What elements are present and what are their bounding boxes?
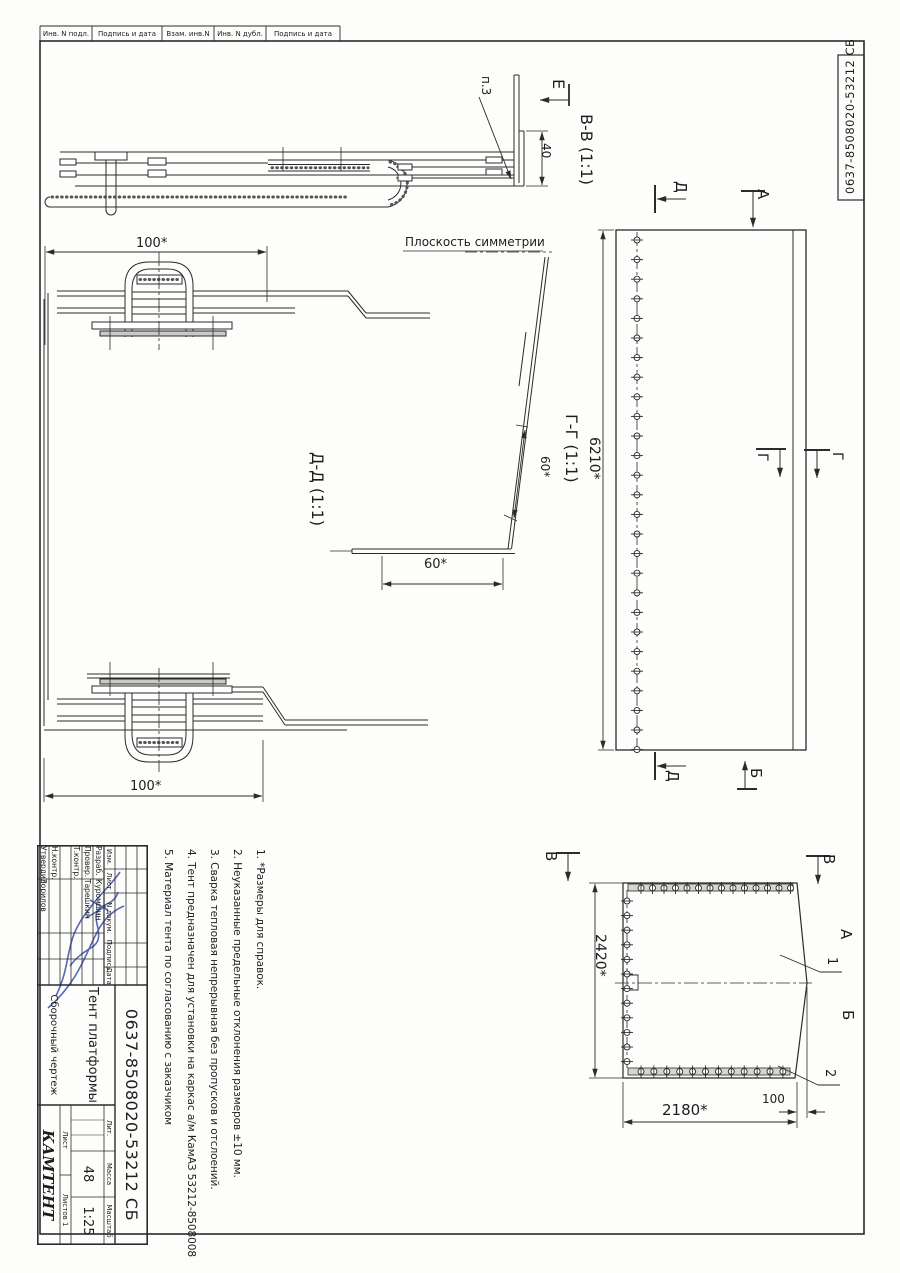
side-label-a: А (837, 929, 853, 939)
section-mark-d-top: Д (672, 181, 688, 193)
filing-cell-vzam-inv: Взам. инв.N (162, 26, 214, 41)
dim-2180: 2180* (662, 1103, 708, 1119)
tb-header-date: Дата (104, 967, 115, 985)
section-mark-v-left: В (542, 851, 558, 861)
detail-bottom-view (44, 662, 428, 802)
tb-sheet-label: Лист (60, 1105, 71, 1175)
tb-role-prover: Провер. (82, 846, 93, 879)
tb-header-sign: Подпись (104, 943, 115, 967)
note-1: 1. *Размеры для справок. (254, 849, 266, 989)
side-label-b: Б (839, 1010, 855, 1020)
tb-doc-number: 0637-8508020-53212 СБ (115, 985, 148, 1245)
side-view (598, 185, 830, 789)
corner-stamp-number: 0637-8508020-53212 СБ (844, 39, 856, 194)
tb-header-ndoc: N докум. (104, 893, 115, 943)
tb-scale-label: Масштаб (104, 1197, 115, 1245)
section-label-dd: Д-Д (1:1) (308, 452, 325, 526)
tb-name-prover: Тарешкин (82, 879, 93, 933)
filing-cell-inv-podl: Инв. N подл. (40, 26, 92, 41)
filing-cell-podpis-data-2: Подпись и дата (266, 26, 340, 41)
dim-60-gg: 60* (538, 456, 551, 477)
section-mark-d-bottom: Д (664, 770, 680, 782)
note-2: 2. Неуказанные предельные отклонения раз… (231, 849, 243, 1178)
tb-doc-type: Сборочный чертеж (37, 985, 71, 1105)
dim-40: 40 (539, 143, 552, 158)
view-mark-a-top: А (754, 189, 770, 199)
rear-view (556, 853, 842, 1128)
tb-scale-value: 1:25 (71, 1197, 104, 1245)
view-mark-b-bottom: Б (747, 768, 763, 778)
profile-gg-dd (330, 251, 552, 590)
note-3: 3. Сварка тепловая непрерывная без пропу… (208, 849, 220, 1190)
tb-lit-label: Лит. (104, 1105, 115, 1151)
section-bb-view (45, 75, 569, 215)
section-label-bb: В-В (1:1) (577, 114, 594, 185)
tb-role-razrab: Разраб. (93, 846, 104, 879)
tb-mass-label: Масса (104, 1151, 115, 1197)
note-4: 4. Тент предназначен для установки на ка… (185, 849, 197, 1257)
title-block: Изм. Лист N докум. Подпись Дата Разраб. … (37, 845, 148, 1245)
tb-name-utv: Зорилов (38, 879, 49, 933)
tb-header-izm: Изм. (104, 845, 115, 869)
tb-header-list: Лист (104, 869, 115, 893)
item-callout-1: 1 (824, 957, 838, 965)
dim-2420: 2420* (592, 934, 607, 977)
section-mark-g-left: Г (754, 453, 769, 462)
item-callout-2: 2 (822, 1069, 836, 1077)
tb-sheets-label: Листов 1 (60, 1175, 71, 1245)
detail-top-view (44, 246, 430, 726)
filing-cell-podpis-data-1: Подпись и дата (92, 26, 162, 41)
filing-cell-inv-dubl: Инв. N дубл. (214, 26, 266, 41)
tb-title: Тент платформы (71, 985, 115, 1105)
symmetry-plane-label: Плоскость симметрии (405, 236, 545, 249)
tb-role-utv: Утвердил (38, 846, 49, 879)
tb-role-tkontr: Т.контр. (71, 846, 82, 879)
dim-6210: 6210* (586, 437, 601, 480)
view-mark-e: Е (549, 79, 566, 89)
tb-mass-value: 48 (71, 1151, 104, 1197)
tb-company: КАМТЕНТ (37, 1105, 60, 1245)
note-5: 5. Материал тента по согласованию с зака… (162, 849, 174, 1125)
dim-100-top: 100* (136, 237, 167, 251)
dim-60-dd: 60* (424, 558, 447, 572)
tb-role-nkontr: Н.контр. (49, 846, 60, 879)
section-label-gg: Г-Г (1:1) (562, 414, 579, 483)
callout-p3: п.3 (479, 76, 492, 95)
dim-100-rear: 100 (762, 1093, 785, 1106)
technical-notes: 1. *Размеры для справок. 2. Неуказанные … (150, 845, 268, 1243)
tb-name-razrab: Куромшин (93, 879, 104, 933)
drawing-sheet: Инв. N подл. Подпись и дата Взам. инв.N … (0, 0, 900, 1273)
dim-100-bottom: 100* (130, 780, 161, 794)
section-mark-v-right: В (820, 854, 836, 864)
section-mark-g-right: Г (829, 452, 844, 461)
